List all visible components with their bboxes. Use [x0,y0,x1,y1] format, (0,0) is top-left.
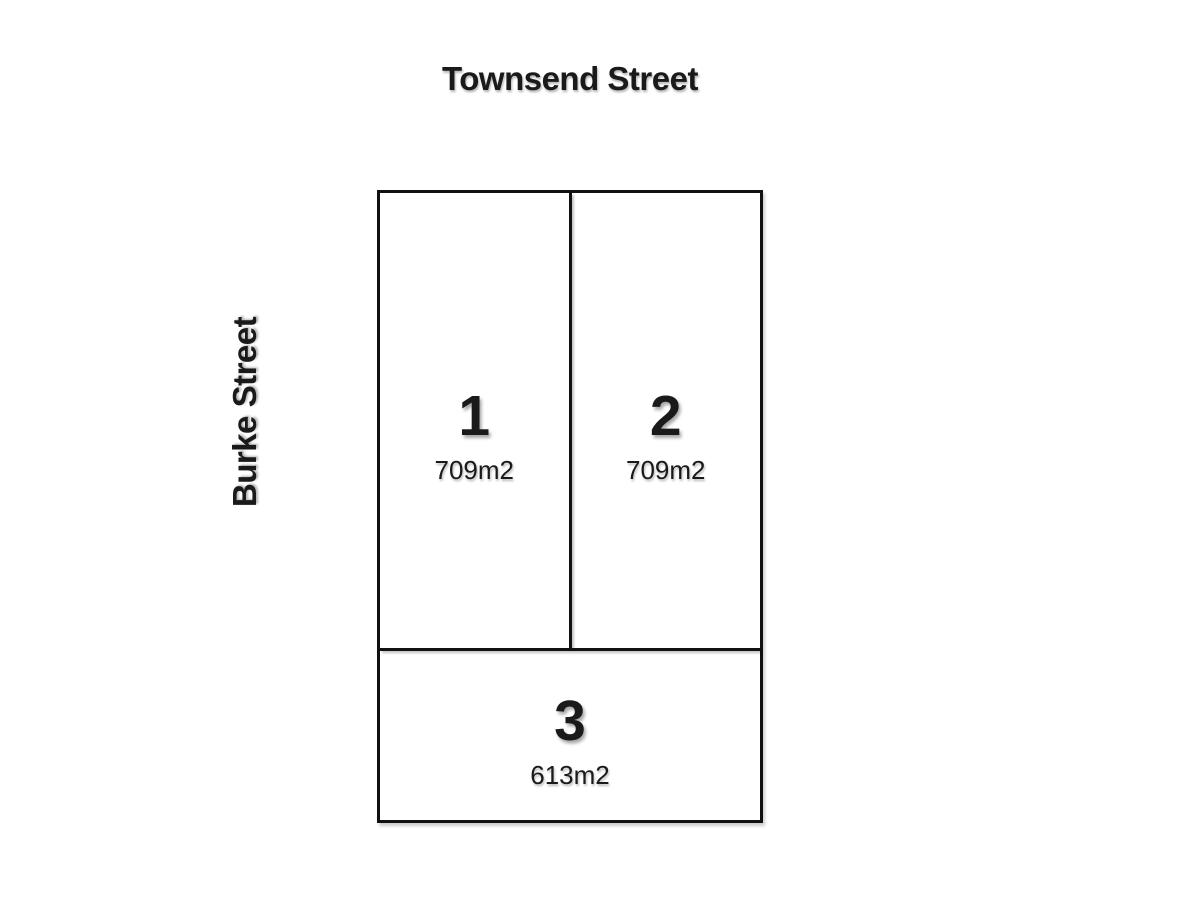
townsend-street-label: Townsend Street [377,60,763,98]
lot-1-area: 709m2 [435,457,515,483]
lot-3: 3 613m2 [380,651,760,820]
lot-3-number: 3 [554,693,586,750]
lot-2-number: 2 [650,388,682,445]
lot-1: 1 709m2 [380,193,569,648]
lot-1-number: 1 [458,388,490,445]
burke-street-label: Burke Street [226,317,264,507]
subdivision-plan-outline: 1 709m2 2 709m2 3 613m2 [377,190,763,823]
subdivision-diagram: Townsend Street Burke Street 1 709m2 2 7… [0,0,1200,900]
lot-2: 2 709m2 [572,193,761,648]
lot-2-area: 709m2 [626,457,706,483]
lot-3-area: 613m2 [530,762,610,788]
